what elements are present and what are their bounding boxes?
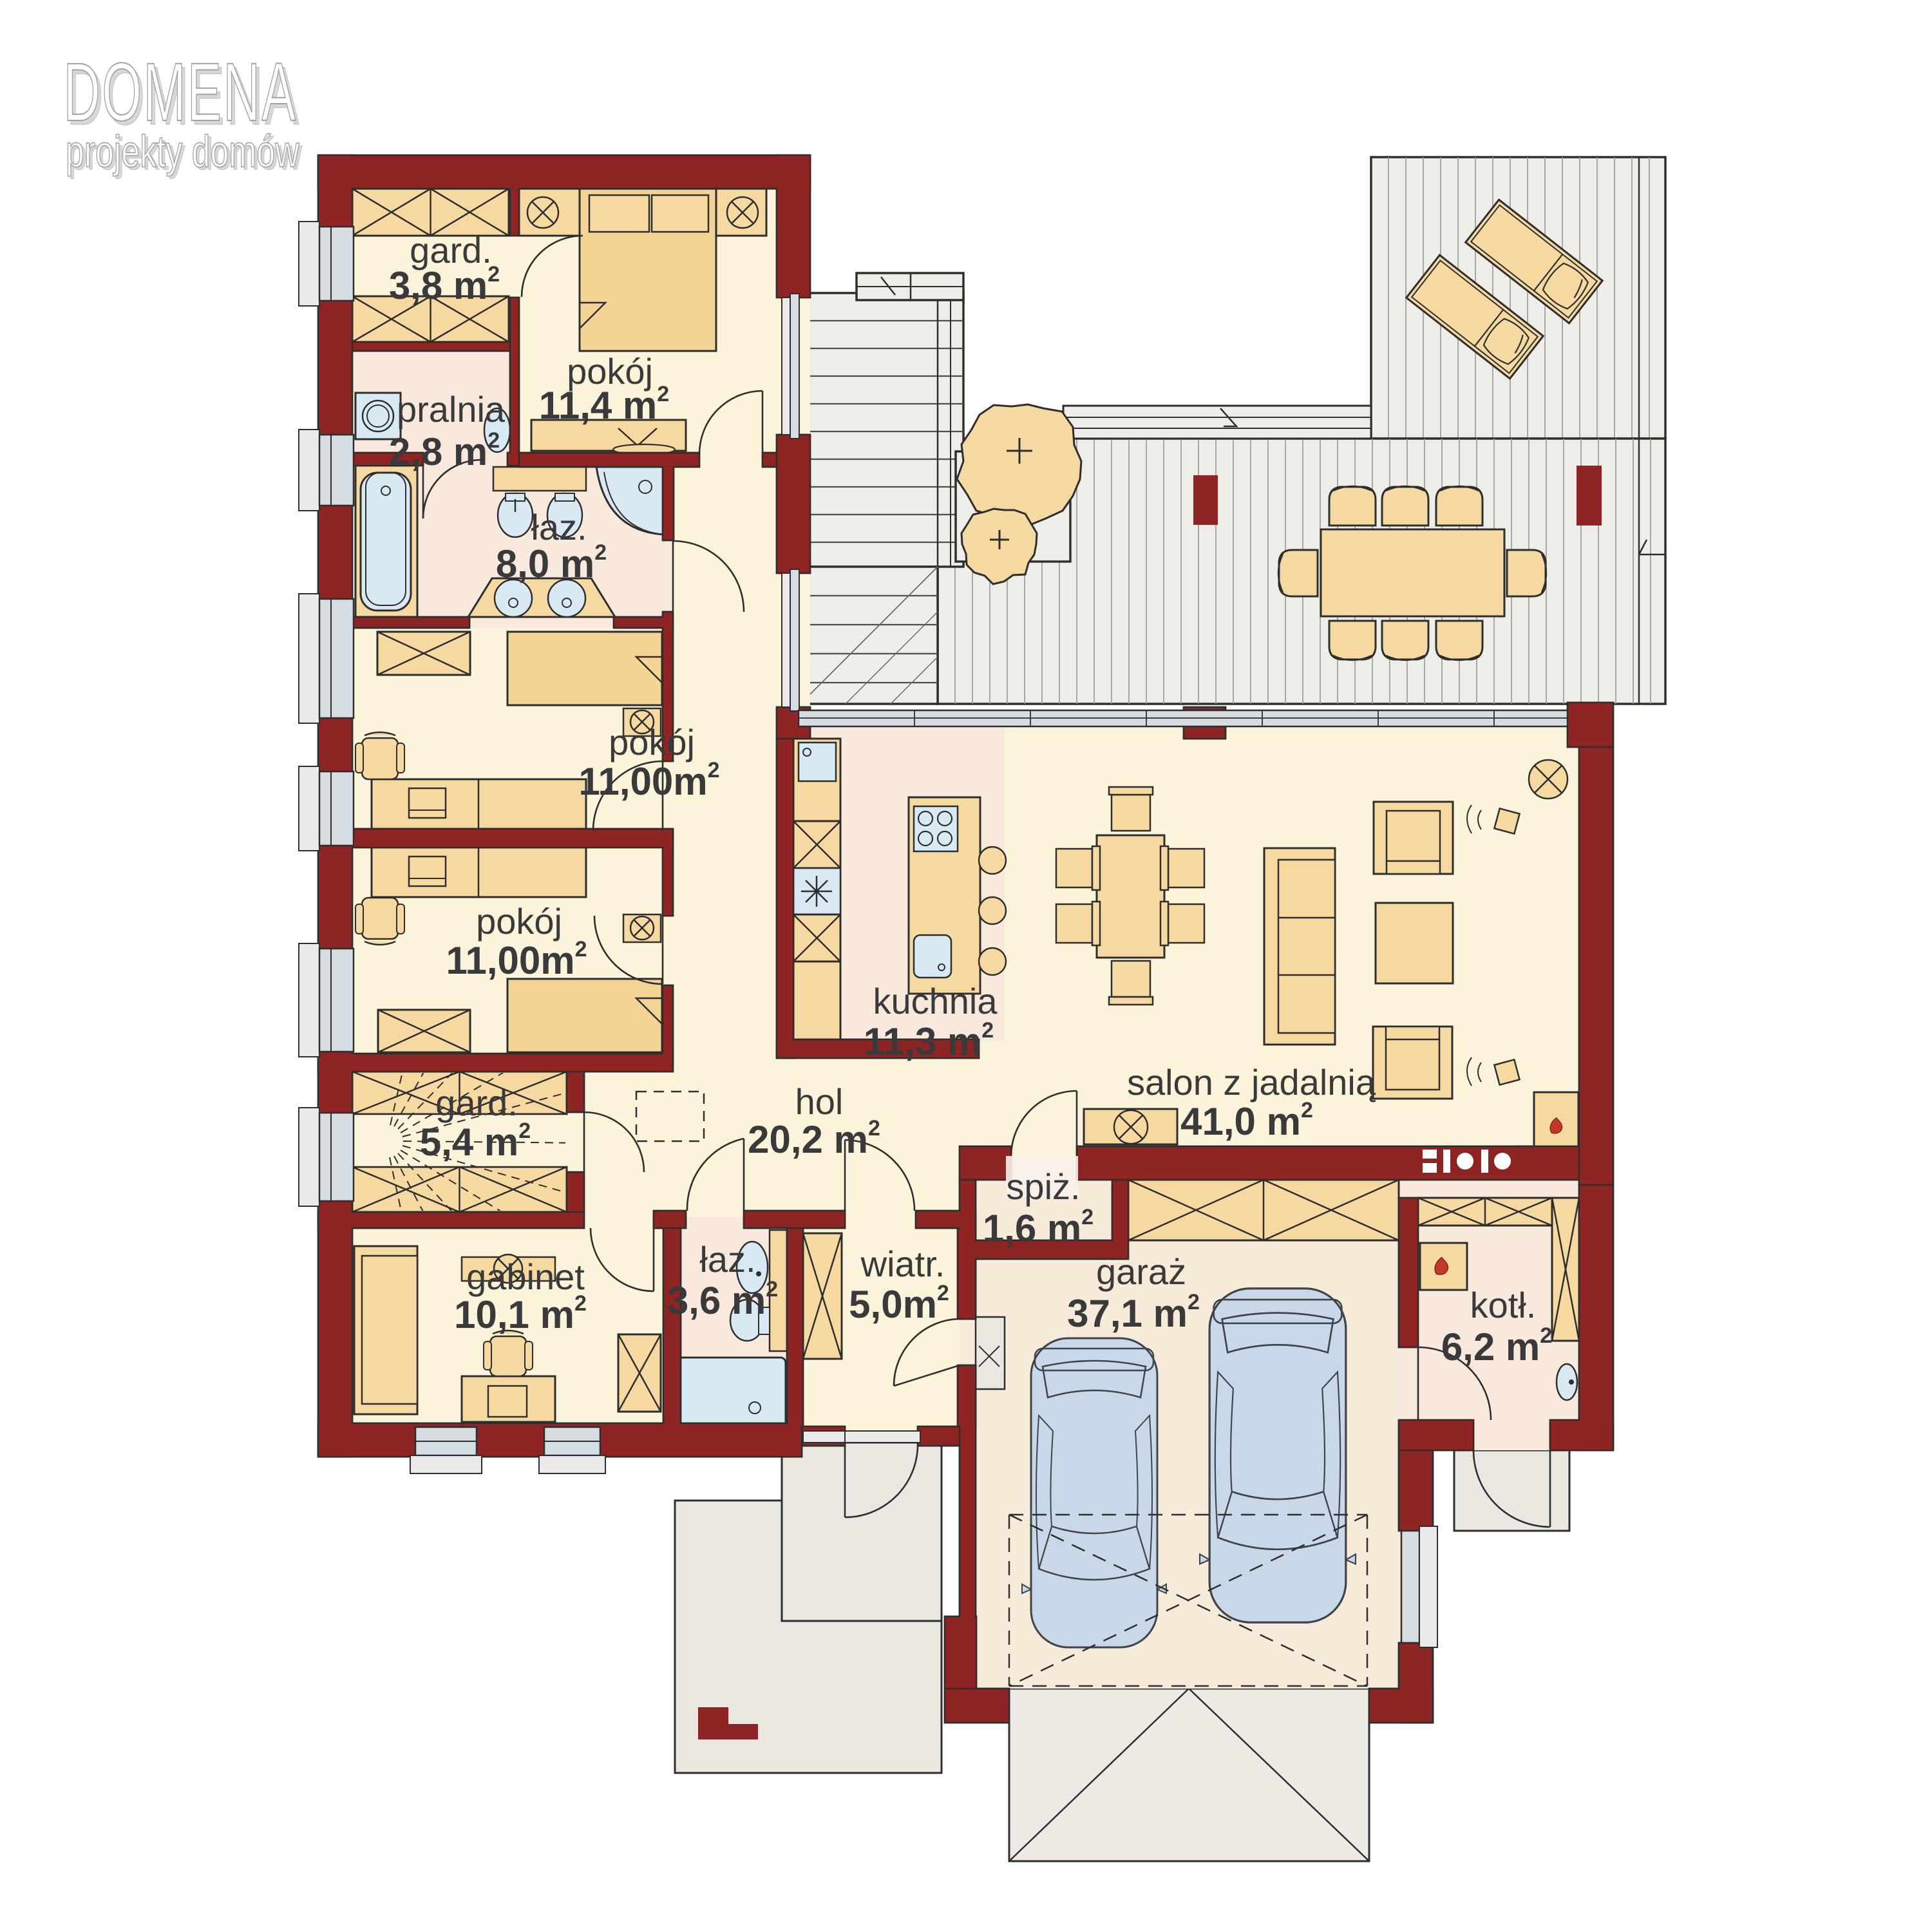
svg-text:3,8 m2: 3,8 m2 <box>389 262 500 307</box>
svg-text:11,3 m2: 11,3 m2 <box>864 1018 994 1063</box>
svg-text:37,1 m2: 37,1 m2 <box>1067 1290 1200 1335</box>
svg-text:gabinet: gabinet <box>466 1256 585 1297</box>
svg-text:wiatr.: wiatr. <box>860 1244 945 1284</box>
svg-text:salon z jadalnią: salon z jadalnią <box>1127 1062 1376 1103</box>
svg-text:pokój: pokój <box>476 901 562 942</box>
svg-text:8,0 m2: 8,0 m2 <box>496 540 607 585</box>
svg-text:5,0m2: 5,0m2 <box>849 1281 949 1326</box>
svg-text:kuchnia: kuchnia <box>873 981 998 1021</box>
svg-text:łaz.: łaz. <box>531 507 587 547</box>
svg-text:pokój: pokój <box>609 722 695 762</box>
svg-text:łaz.: łaz. <box>699 1239 755 1280</box>
svg-text:6,2 m2: 6,2 m2 <box>1441 1323 1552 1368</box>
svg-text:1,6 m2: 1,6 m2 <box>983 1205 1094 1250</box>
svg-text:11,00m2: 11,00m2 <box>446 937 587 982</box>
svg-text:10,1 m2: 10,1 m2 <box>454 1291 587 1336</box>
svg-text:spiż.: spiż. <box>1006 1166 1080 1207</box>
svg-text:20,2 m2: 20,2 m2 <box>748 1116 880 1161</box>
svg-text:5,4 m2: 5,4 m2 <box>420 1119 531 1164</box>
svg-text:11,00m2: 11,00m2 <box>578 758 719 803</box>
svg-text:2,8 m2: 2,8 m2 <box>389 428 500 473</box>
svg-text:garaż: garaż <box>1096 1251 1186 1292</box>
svg-text:11,4 m2: 11,4 m2 <box>539 382 669 427</box>
svg-text:41,0 m2: 41,0 m2 <box>1180 1098 1313 1143</box>
svg-text:pralnia: pralnia <box>397 389 506 430</box>
svg-text:kotł.: kotł. <box>1470 1285 1537 1325</box>
svg-text:gard.: gard. <box>435 1083 518 1123</box>
svg-text:3,6 m2: 3,6 m2 <box>667 1277 778 1322</box>
svg-text:DOMENA: DOMENA <box>63 46 297 138</box>
svg-text:hol: hol <box>795 1081 844 1122</box>
svg-text:projekty domów: projekty domów <box>66 126 299 176</box>
